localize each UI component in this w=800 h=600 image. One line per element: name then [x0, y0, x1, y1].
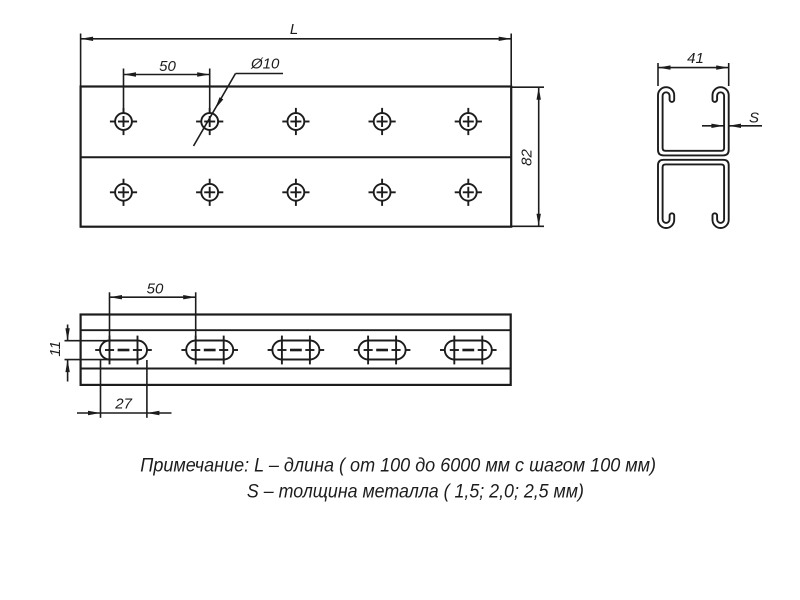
svg-text:27: 27 [114, 396, 132, 413]
svg-text:L: L [290, 21, 298, 38]
svg-text:50: 50 [159, 58, 176, 75]
svg-text:Примечание: L – длина ( от 100: Примечание: L – длина ( от 100 до 6000 м… [140, 455, 656, 476]
svg-text:S: S [749, 110, 759, 127]
svg-text:Ø10: Ø10 [250, 56, 280, 73]
svg-text:50: 50 [147, 281, 164, 298]
svg-text:11: 11 [47, 341, 64, 357]
svg-text:41: 41 [687, 50, 704, 67]
svg-text:82: 82 [519, 149, 536, 166]
svg-text:S – толщина металла ( 1,5; 2,0: S – толщина металла ( 1,5; 2,0; 2,5 мм) [247, 482, 584, 503]
